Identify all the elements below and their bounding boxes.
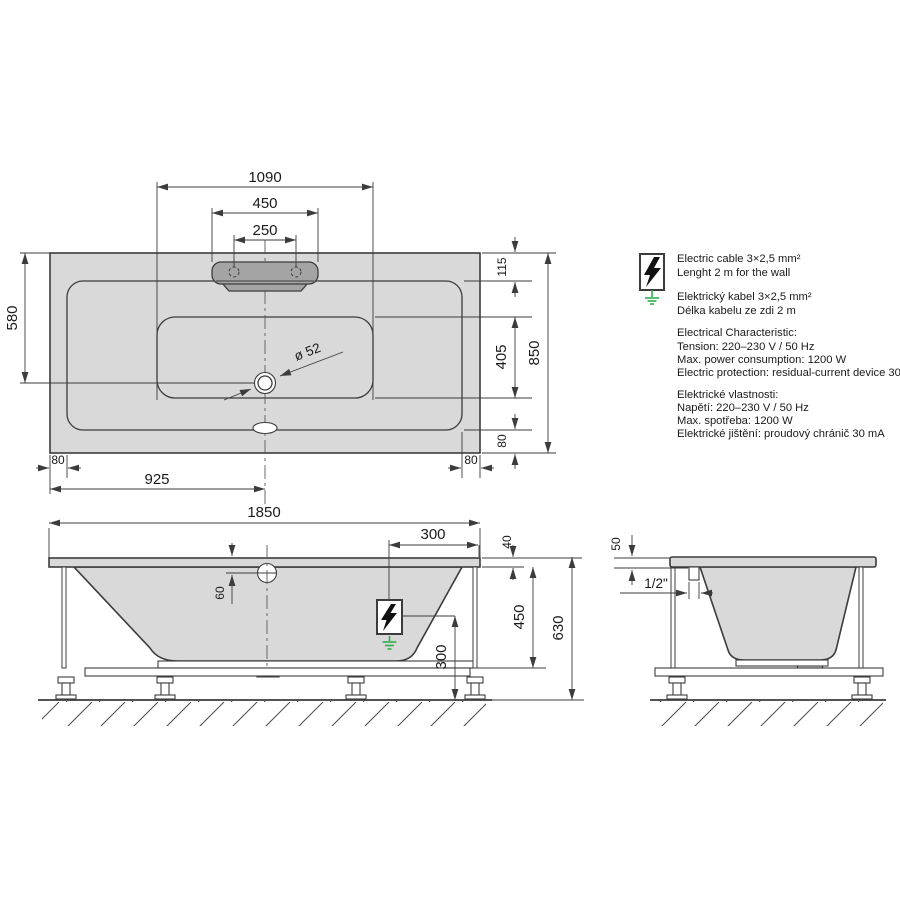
side-view: 50 1/2" [609, 535, 886, 726]
adjustable-foot [346, 677, 366, 699]
adjustable-foot [56, 677, 76, 699]
overflow-top [253, 423, 277, 434]
dim-rim-right: 80 [464, 453, 478, 467]
dim-skirt-height: 450 [511, 604, 528, 629]
dim-cable-height: 300 [433, 644, 450, 669]
note-elec-cs-3: Elektrické jištění: proudový chránič 30 … [677, 428, 885, 440]
dim-rim-thickness: 40 [500, 535, 514, 549]
dim-rim-side: 80 [495, 434, 509, 448]
note-cable-cs-1: Elektrický kabel 3×2,5 mm² [677, 291, 812, 303]
frame-rail-front [85, 668, 470, 676]
technical-drawing-page: 1090 450 250 580 115 405 80 850 80 80 92… [0, 0, 900, 900]
dim-width-total: 850 [526, 340, 543, 365]
dim-pipe-size: 1/2" [644, 576, 668, 591]
note-elec-cs-title: Elektrické vlastnosti: [677, 389, 778, 401]
note-elec-en-2: Max. power consumption: 1200 W [677, 354, 847, 366]
frame-post [473, 567, 477, 668]
note-cable-en-2: Lenght 2 m for the wall [677, 267, 790, 279]
top-view: 1090 450 250 580 115 405 80 850 80 80 92… [4, 169, 556, 505]
front-view: 1850 [38, 504, 584, 726]
note-elec-en-3: Electric protection: residual-current de… [677, 367, 900, 379]
electric-hazard-icon [377, 600, 402, 634]
adjustable-foot [667, 677, 687, 699]
headrest [212, 262, 318, 291]
ground-icon [645, 290, 659, 304]
frame-post [859, 567, 863, 668]
note-elec-en-title: Electrical Characteristic: [677, 327, 797, 339]
drain [255, 373, 276, 394]
adjustable-foot [155, 677, 175, 699]
dim-half-length: 925 [144, 471, 169, 488]
tub-base-board-side [736, 660, 828, 666]
floor-hatching-side [653, 701, 883, 726]
note-cable-en-1: Electric cable 3×2,5 mm² [677, 253, 801, 265]
dim-overflow-offset: 60 [213, 586, 227, 600]
dim-cable-offset: 300 [420, 526, 445, 543]
dim-rim-left: 80 [51, 453, 65, 467]
dim-rim-head: 115 [495, 257, 509, 276]
dim-rim-drop: 50 [609, 537, 623, 551]
note-cable-cs-2: Délka kabelu ze zdi 2 m [677, 305, 796, 317]
notes-panel: Electric cable 3×2,5 mm² Lenght 2 m for … [640, 253, 900, 440]
adjustable-foot [465, 677, 485, 699]
dim-length-total: 1850 [247, 504, 280, 521]
dim-height-total: 630 [550, 615, 567, 640]
frame-post [62, 567, 66, 668]
tub-base-board-front [158, 661, 474, 668]
electric-cable-icon [640, 254, 664, 290]
tub-rim-side [670, 557, 876, 567]
pipe-connection [689, 567, 699, 580]
frame-post [671, 567, 675, 668]
note-elec-cs-1: Napětí: 220–230 V / 50 Hz [677, 402, 809, 414]
note-elec-en-1: Tension: 220–230 V / 50 Hz [677, 341, 815, 353]
bathtub-technical-drawing: 1090 450 250 580 115 405 80 850 80 80 92… [0, 0, 900, 900]
dim-floor-width: 405 [493, 344, 510, 369]
tub-body-side [700, 567, 856, 660]
dim-holes-spacing: 250 [252, 222, 277, 239]
dim-drain-from-edge: 580 [4, 305, 21, 330]
dim-floor-length: 1090 [248, 169, 281, 186]
note-elec-cs-2: Max. spotřeba: 1200 W [677, 415, 793, 427]
frame-rail-side [655, 668, 883, 676]
dim-headrest-width: 450 [252, 195, 277, 212]
floor-hatching-front [42, 701, 486, 726]
adjustable-foot [852, 677, 872, 699]
